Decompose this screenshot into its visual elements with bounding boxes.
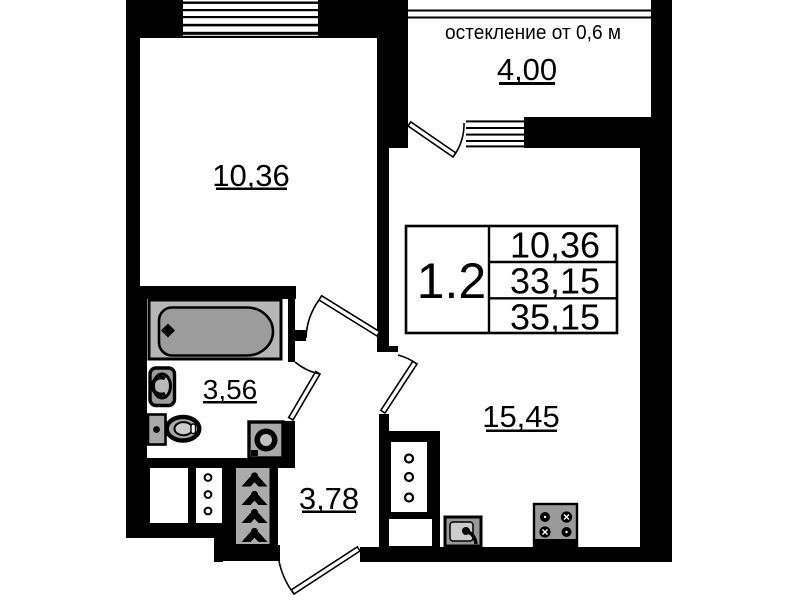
svg-text:33,15: 33,15 [510, 261, 600, 302]
svg-text:4,00: 4,00 [497, 52, 557, 87]
svg-text:3,56: 3,56 [203, 374, 258, 405]
svg-text:15,45: 15,45 [482, 399, 560, 434]
svg-text:35,15: 35,15 [510, 297, 600, 338]
svg-text:1.2: 1.2 [417, 253, 487, 309]
svg-text:10,36: 10,36 [510, 225, 600, 266]
svg-text:остекление от 0,6 м: остекление от 0,6 м [445, 22, 621, 44]
